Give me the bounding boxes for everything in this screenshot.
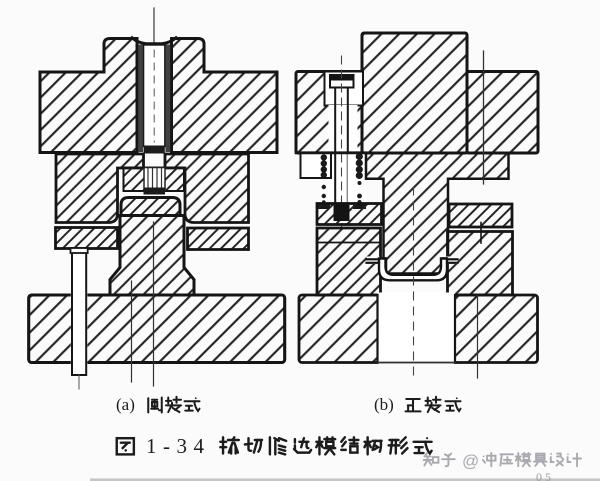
svg-text:@: @ bbox=[462, 452, 479, 471]
svg-text:(b): (b) bbox=[374, 395, 394, 414]
svg-text:(a): (a) bbox=[116, 395, 135, 414]
svg-text:1-34: 1-34 bbox=[146, 434, 211, 458]
svg-text:0 5: 0 5 bbox=[536, 470, 551, 481]
